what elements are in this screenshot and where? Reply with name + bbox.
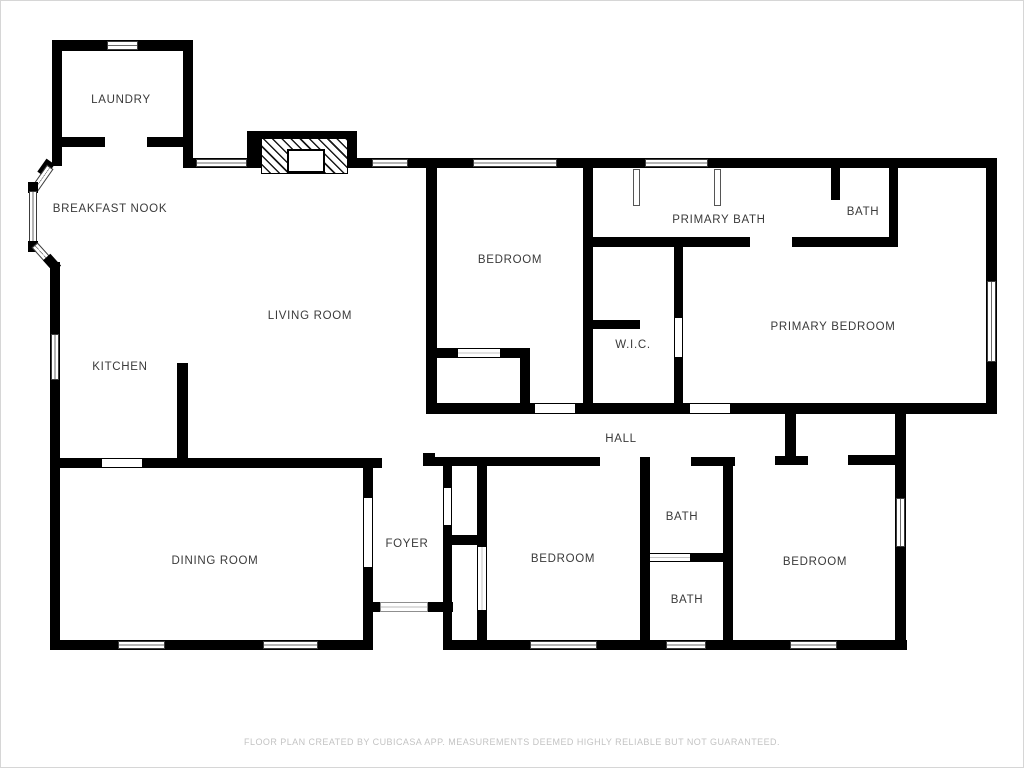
room-label-bath-top-right: BATH <box>847 206 880 218</box>
window <box>107 41 138 50</box>
room-label-hall: HALL <box>605 433 637 445</box>
wall <box>373 602 380 612</box>
wall <box>889 168 898 247</box>
wall <box>583 237 750 247</box>
window <box>666 641 706 649</box>
window <box>530 641 597 649</box>
door-opening <box>690 404 730 413</box>
bay-window <box>29 191 37 243</box>
closet-door <box>478 547 486 610</box>
room-label-bedroom-top: BEDROOM <box>478 254 542 266</box>
window <box>372 159 408 167</box>
room-label-bedroom-center: BEDROOM <box>531 553 595 565</box>
room-label-laundry: LAUNDRY <box>91 94 151 106</box>
room-label-breakfast-nook: BREAKFAST NOOK <box>53 203 167 215</box>
door-opening <box>364 498 372 567</box>
room-label-bath-mid: BATH <box>666 511 699 523</box>
shower-glass-panel <box>714 169 721 206</box>
wall <box>50 640 373 650</box>
wall <box>426 166 437 414</box>
entry-door <box>380 602 428 612</box>
window <box>473 159 557 167</box>
door-opening <box>675 318 682 357</box>
window <box>645 159 708 167</box>
room-label-kitchen: KITCHEN <box>92 361 147 373</box>
wall <box>520 348 530 408</box>
footer-disclaimer: FLOOR PLAN CREATED BY CUBICASA APP. MEAS… <box>244 737 780 747</box>
window <box>790 641 837 649</box>
window <box>896 498 905 547</box>
wall <box>848 455 895 465</box>
room-label-bedroom-right: BEDROOM <box>783 556 847 568</box>
window <box>118 641 165 649</box>
wall <box>423 457 600 466</box>
wall <box>792 237 898 247</box>
fireplace-firebox <box>287 149 325 173</box>
room-label-foyer: FOYER <box>385 538 428 550</box>
wall <box>831 168 840 200</box>
room-label-bath-lower: BATH <box>671 594 704 606</box>
wall <box>52 40 62 166</box>
door-opening <box>650 554 690 561</box>
wall <box>443 458 452 650</box>
floor-plan: LAUNDRY BREAKFAST NOOK LIVING ROOM KITCH… <box>0 0 1024 768</box>
room-label-primary-bedroom: PRIMARY BEDROOM <box>770 321 895 333</box>
wall <box>50 262 60 650</box>
wall <box>723 457 733 650</box>
wall <box>183 40 193 168</box>
window <box>263 641 318 649</box>
wall <box>50 458 382 468</box>
window <box>196 159 247 167</box>
shower-glass-panel <box>633 169 640 206</box>
door-opening <box>105 137 147 147</box>
door-opening <box>444 488 451 525</box>
room-label-living-room: LIVING ROOM <box>268 310 352 322</box>
room-label-wic: W.I.C. <box>615 339 651 351</box>
room-label-dining-room: DINING ROOM <box>172 555 259 567</box>
wall <box>785 414 796 465</box>
door-opening <box>102 459 142 467</box>
closet-door <box>458 349 500 357</box>
window <box>51 334 59 380</box>
door-opening <box>535 404 575 413</box>
wall <box>583 168 593 414</box>
wall <box>583 320 640 329</box>
window <box>987 281 996 362</box>
room-label-primary-bath: PRIMARY BATH <box>672 214 765 226</box>
wall <box>177 363 188 468</box>
